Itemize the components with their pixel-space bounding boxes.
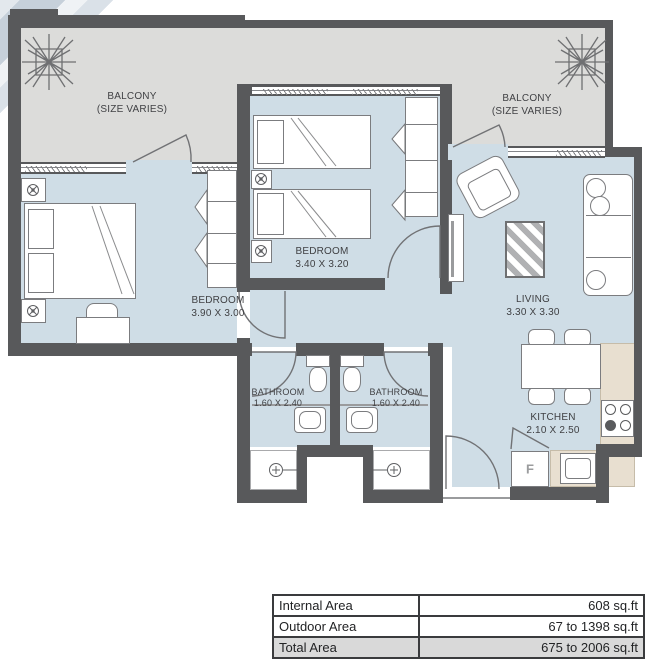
balcony-right-label: BALCONY (SIZE VARIES) (467, 93, 587, 118)
wardrobe-left-bedroom (207, 170, 237, 288)
area-row-value: 608 sq.ft (419, 595, 644, 616)
kitchen-sink (560, 453, 596, 484)
room-name: BALCONY (467, 93, 587, 106)
toilet (306, 355, 330, 367)
wall-kitchen-bottom (510, 487, 609, 500)
area-row-label: Internal Area (273, 595, 419, 616)
window-bedroom-middle-top (252, 85, 440, 96)
sink-basin (351, 411, 373, 429)
sofa-pillow (586, 178, 606, 198)
fridge-label: F (512, 462, 548, 477)
balcony-center-floor (237, 28, 452, 84)
room-name: BEDROOM (262, 246, 382, 259)
bathroom-left-label: BATHROOM 1.60 X 2.40 (238, 387, 318, 410)
desk (76, 317, 130, 344)
shower-room-left-floor (250, 450, 297, 490)
dining-chair (564, 387, 591, 405)
floor-plan: F (0, 0, 660, 668)
wall-left (8, 15, 21, 356)
wall-bedroom-mid-bottom (247, 278, 385, 290)
area-row-value: 67 to 1398 sq.ft (419, 616, 644, 637)
wall-living-right (634, 147, 642, 457)
wall-shower-bridge (297, 445, 373, 457)
wall-top-right (240, 20, 613, 28)
area-row-label: Total Area (273, 637, 419, 658)
nightstand (251, 170, 272, 189)
room-name: BEDROOM (158, 295, 278, 308)
sink-basin (299, 411, 321, 429)
table-row-total: Total Area 675 to 2006 sq.ft (273, 637, 644, 658)
room-name: KITCHEN (493, 412, 613, 425)
rug (505, 221, 545, 278)
pillow (28, 253, 54, 293)
room-dims: 3.90 X 3.00 (158, 308, 278, 321)
room-name: BALCONY (72, 91, 192, 104)
room-dims: 3.30 X 3.30 (473, 307, 593, 320)
area-summary-table: Internal Area 608 sq.ft Outdoor Area 67 … (272, 594, 645, 659)
area-row-label: Outdoor Area (273, 616, 419, 637)
pillow (257, 120, 284, 164)
shower-room-right-floor (373, 450, 430, 490)
pillow (257, 193, 284, 235)
room-name: BATHROOM (238, 387, 318, 398)
wall-bottom-left (8, 343, 252, 356)
toilet (340, 355, 364, 367)
room-dims: 2.10 X 2.50 (493, 425, 613, 438)
bedroom-middle-label: BEDROOM 3.40 X 3.20 (262, 246, 382, 271)
entrance-threshold (443, 497, 510, 499)
living-label: LIVING 3.30 X 3.30 (473, 294, 593, 319)
dining-chair (528, 387, 555, 405)
room-dims: 3.40 X 3.20 (262, 259, 382, 272)
wall-bath-divider (330, 343, 340, 447)
wall-balcony-right (605, 20, 613, 150)
wall-mid-left-upper (237, 84, 250, 292)
wardrobe-middle-bedroom (405, 97, 438, 217)
area-row-value: 675 to 2006 sq.ft (419, 637, 644, 658)
fridge: F (511, 451, 549, 487)
table-row: Internal Area 608 sq.ft (273, 595, 644, 616)
room-size-note: (SIZE VARIES) (72, 104, 192, 117)
bathroom-right-label: BATHROOM 1.60 X 2.40 (356, 387, 436, 410)
hall-floor (250, 290, 452, 347)
tv-console (448, 214, 464, 282)
pillow (28, 209, 54, 249)
room-name: LIVING (473, 294, 593, 307)
room-name: BATHROOM (356, 387, 436, 398)
balcony-left-label: BALCONY (SIZE VARIES) (72, 91, 192, 116)
balcony-right-floor (452, 28, 605, 147)
bedroom-left-label: BEDROOM 3.90 X 3.00 (158, 295, 278, 320)
wall-mid-left-lower (237, 338, 250, 503)
wall-shower-bottom-left (237, 490, 307, 503)
sofa-pillow (586, 270, 606, 290)
wall-shower-bottom-right (363, 490, 443, 503)
nightstand (21, 178, 46, 202)
room-dims: 1.60 X 2.40 (238, 398, 318, 409)
nightstand (21, 299, 46, 323)
sofa-pillow (590, 196, 610, 216)
kitchen-label: KITCHEN 2.10 X 2.50 (493, 412, 613, 437)
door-gap-balcony-left (126, 160, 192, 176)
room-size-note: (SIZE VARIES) (467, 106, 587, 119)
wall-living-left (430, 345, 443, 500)
room-dims: 1.60 X 2.40 (356, 398, 436, 409)
table-row: Outdoor Area 67 to 1398 sq.ft (273, 616, 644, 637)
wall-bath-top-right (428, 343, 443, 356)
dining-table (521, 344, 601, 389)
